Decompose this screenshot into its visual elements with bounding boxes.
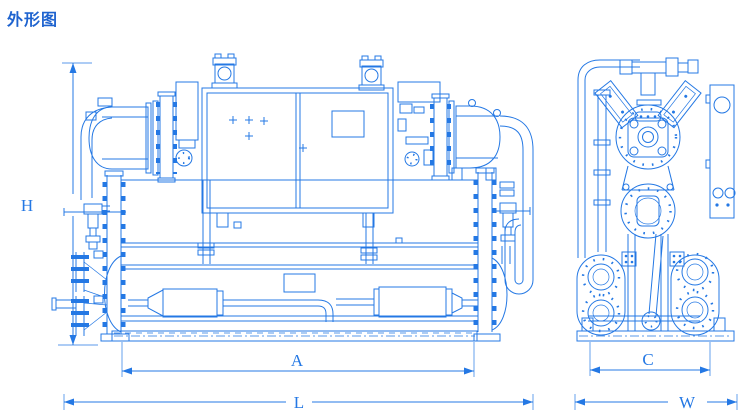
dimension-w-label: W — [679, 393, 696, 412]
front-view: H A L — [21, 54, 533, 412]
dimension-c: C — [590, 342, 710, 376]
side-view: C W — [575, 58, 737, 412]
motor-end-view — [621, 184, 675, 238]
oil-pump-motor-2 — [359, 56, 384, 90]
dimension-w: W — [575, 393, 737, 412]
evaporator-vessel — [121, 265, 478, 321]
compressor-left — [81, 82, 198, 200]
discharge-pipe-outer — [500, 116, 533, 188]
dimension-a-label: A — [291, 351, 304, 370]
base-rail — [101, 331, 500, 341]
filter-drier-2 — [336, 287, 478, 317]
panel-leg — [217, 213, 228, 227]
pipe-loop-right — [500, 182, 533, 294]
dimension-a: A — [122, 342, 474, 377]
dimension-c-label: C — [642, 350, 653, 369]
suction-housing — [176, 82, 198, 140]
panel-marks — [229, 116, 307, 152]
dimension-l-label: L — [294, 393, 304, 412]
discharge-pipe-inner — [500, 126, 523, 188]
filter-drier-1 — [128, 289, 333, 322]
control-panel — [202, 88, 393, 227]
bearing-cover — [628, 118, 668, 157]
suction-flange-column — [160, 96, 173, 178]
compressor-end-view — [595, 81, 701, 190]
oil-pump-motor-1 — [212, 54, 237, 88]
service-valve-top — [620, 58, 698, 95]
discharge-flange-column — [434, 98, 447, 176]
nameplate — [284, 274, 315, 292]
dimension-h-label: H — [21, 196, 33, 215]
water-connections-left — [52, 251, 107, 336]
panel-window — [332, 111, 364, 137]
expansion-valve-right — [492, 203, 530, 264]
dimension-l: L — [64, 393, 533, 412]
connecting-pipes — [198, 180, 377, 264]
outline-drawing-canvas: H A L — [0, 0, 740, 413]
suction-pipe-inner — [92, 118, 112, 198]
control-panel-side — [706, 85, 735, 218]
compressor-right — [398, 82, 533, 188]
vessel-end-flange-left — [577, 255, 625, 335]
panel-leg — [363, 213, 374, 227]
side-pipes-left — [578, 60, 640, 258]
